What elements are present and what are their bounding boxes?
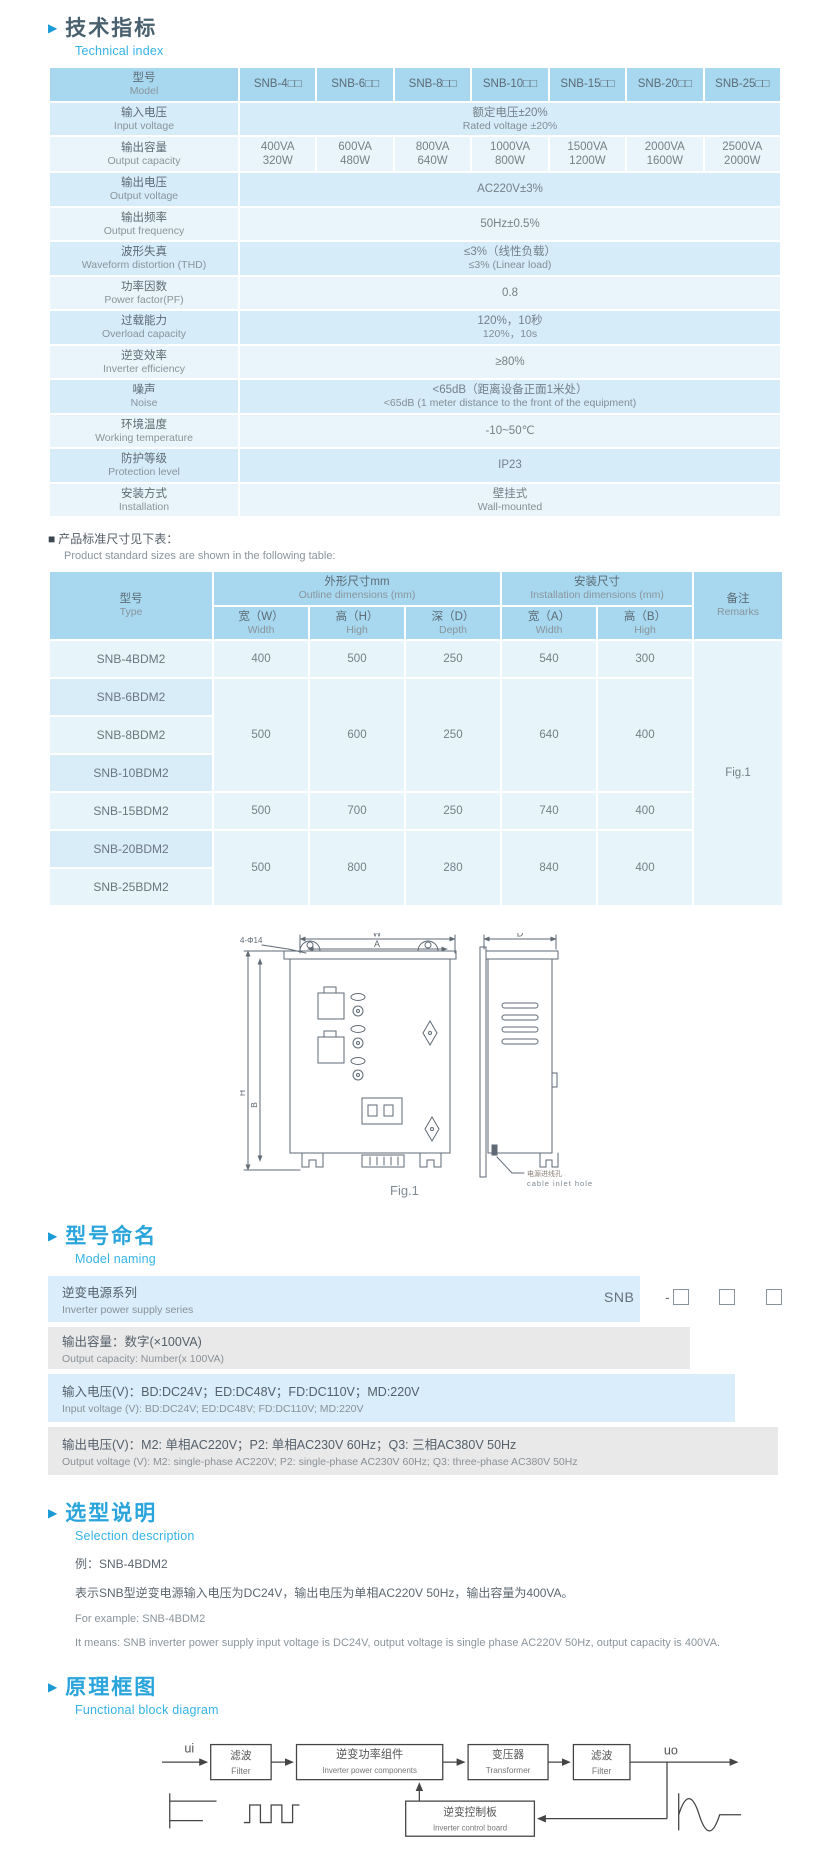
fig-caption: Fig.1 — [390, 1183, 419, 1198]
dim-cell: 300 — [597, 640, 693, 678]
code-box-icon — [766, 1289, 782, 1305]
row-value: 50Hz±0.5% — [239, 207, 781, 242]
section-arrow-icon: ▶ — [48, 1500, 57, 1526]
section-naming-title: ▶ 型号命名 — [48, 1224, 782, 1250]
spec-row: 安装方式Installation 壁挂式Wall-mounted — [49, 483, 781, 518]
selection-desc-zh: 表示SNB型逆变电源输入电压为DC24V，输出电压为单相AC220V 50Hz，… — [75, 1584, 782, 1601]
row-label: 输出频率Output frequency — [49, 207, 239, 242]
spec-row: 波形失真Waveform distortion (THD) ≤3%（线性负载）≤… — [49, 241, 781, 276]
size-note-zh: 产品标准尺寸见下表： — [58, 532, 178, 546]
row-value: AC220V±3% — [239, 172, 781, 207]
section-arrow-icon: ▶ — [48, 1674, 57, 1700]
fig-dim-w: W — [373, 933, 382, 939]
spec-row: 输出容量Output capacity 400VA320W 600VA480W … — [49, 136, 781, 172]
fig-holes-label: 4-Φ14 — [240, 936, 263, 945]
naming-title-text: 型号命名 — [65, 1224, 157, 1250]
row-label: 过载能力Overload capacity — [49, 310, 239, 345]
dim-cell: 250 — [405, 640, 501, 678]
row-value: 0.8 — [239, 276, 781, 311]
size-row: SNB-15BDM2 500 700 250 740 400 — [49, 792, 783, 830]
col-header: SNB-4□□ — [239, 67, 316, 102]
fig-dim-b: B — [249, 1102, 259, 1108]
spec-row: 逆变效率Inverter efficiency ≥80% — [49, 345, 781, 380]
col-header-remarks: 备注Remarks — [693, 571, 783, 640]
size-table: 型号Type 外形尺寸mmOutline dimensions (mm) 安装尺… — [48, 570, 784, 907]
size-row: SNB-4BDM2 400 500 250 540 300 Fig.1 — [49, 640, 783, 678]
spec-row: 噪声Noise <65dB（距离设备正面1米处）<65dB (1 meter d… — [49, 379, 781, 414]
row-value: ≤3%（线性负载）≤3% (Linear load) — [239, 241, 781, 276]
selection-example-en: For example: SNB-4BDM2 — [75, 1613, 782, 1625]
section-arrow-icon: ▶ — [48, 15, 57, 41]
dim-cell: 500 — [213, 792, 309, 830]
row-label: 输出容量Output capacity — [49, 136, 239, 172]
spec-row: 环境温度Working temperature -10~50℃ — [49, 414, 781, 449]
dim-cell: 400 — [597, 678, 693, 792]
fig-dim-a: A — [374, 939, 380, 949]
dim-cell: 400 — [597, 830, 693, 906]
col-header-install: 安装尺寸Installation dimensions (mm) — [501, 571, 693, 606]
functional-block-diagram: ui uo 滤波 Filter 逆变功率组件 Inverter power co… — [160, 1725, 782, 1852]
header-zh: 型号 — [54, 71, 234, 85]
row-value: 1500VA1200W — [549, 136, 626, 172]
diagram-box-filter2: 滤波 Filter — [591, 1749, 613, 1776]
spec-row: 防护等级Protection level IP23 — [49, 448, 781, 483]
svg-text:Filter: Filter — [231, 1766, 251, 1776]
row-label: 输出电压Output voltage — [49, 172, 239, 207]
col-header: SNB-15□□ — [549, 67, 626, 102]
svg-text:变压器: 变压器 — [492, 1748, 524, 1761]
fig-dim-h: H — [240, 1090, 247, 1096]
col-header: SNB-20□□ — [626, 67, 703, 102]
section-selection-title: ▶ 选型说明 — [48, 1501, 782, 1527]
naming-row-input-voltage: 输入电压(V)：BD:DC24V；ED:DC48V；FD:DC110V；MD:2… — [48, 1374, 735, 1422]
row-label: 波形失真Waveform distortion (THD) — [49, 241, 239, 276]
svg-text:逆变功率组件: 逆变功率组件 — [336, 1747, 403, 1761]
row-value: 壁挂式Wall-mounted — [239, 483, 781, 518]
dim-cell: 640 — [501, 678, 597, 792]
row-value: <65dB（距离设备正面1米处）<65dB (1 meter distance … — [239, 379, 781, 414]
model-cell: SNB-25BDM2 — [49, 868, 213, 906]
dim-cell: 540 — [501, 640, 597, 678]
fig-inlet-en: cable inlet hole — [527, 1179, 593, 1188]
diagram-box-inverter-power: 逆变功率组件 Inverter power components — [322, 1747, 417, 1775]
size-note: ■产品标准尺寸见下表： Product standard sizes are s… — [48, 530, 782, 562]
section-naming-subtitle: Model naming — [75, 1252, 782, 1266]
row-value: 2500VA2000W — [704, 136, 781, 172]
datasheet-page: ▶ 技术指标 Technical index 型号 Model SNB-4□□ … — [48, 16, 782, 1852]
col-header-w: 宽（W）Width — [213, 606, 309, 641]
code-prefix: SNB — [604, 1289, 634, 1305]
dim-cell: 280 — [405, 830, 501, 906]
diagram-box-filter1: 滤波 Filter — [230, 1749, 252, 1776]
row-value: 额定电压±20%Rated voltage ±20% — [239, 102, 781, 137]
spec-row: 输出电压Output voltage AC220V±3% — [49, 172, 781, 207]
diagram-output-label: uo — [664, 1743, 678, 1757]
svg-text:滤波: 滤波 — [230, 1749, 252, 1762]
technical-spec-table: 型号 Model SNB-4□□ SNB-6□□ SNB-8□□ SNB-10□… — [48, 66, 782, 518]
page-title: 技术指标 — [65, 16, 157, 42]
model-cell: SNB-8BDM2 — [49, 716, 213, 754]
row-value: 800VA640W — [394, 136, 471, 172]
naming-row-capacity: 输出容量：数字(×100VA) Output capacity: Number(… — [48, 1327, 690, 1369]
model-cell: SNB-15BDM2 — [49, 792, 213, 830]
header-en: Model — [54, 85, 234, 98]
diagram-box-transformer: 变压器 Transformer — [486, 1748, 531, 1775]
row-label: 防护等级Protection level — [49, 448, 239, 483]
svg-text:Inverter control board: Inverter control board — [433, 1823, 507, 1832]
dim-cell: 250 — [405, 792, 501, 830]
row-value: 2000VA1600W — [626, 136, 703, 172]
dim-cell: 740 — [501, 792, 597, 830]
dim-cell: 250 — [405, 678, 501, 792]
col-header-a: 宽（A）Width — [501, 606, 597, 641]
row-value: -10~50℃ — [239, 414, 781, 449]
size-row: SNB-6BDM2 500 600 250 640 400 — [49, 678, 783, 716]
code-capacity-slot: - — [665, 1289, 689, 1305]
size-note-en: Product standard sizes are shown in the … — [64, 550, 782, 562]
row-value: 600VA480W — [316, 136, 393, 172]
spec-row: 过载能力Overload capacity 120%，10秒120%，10s — [49, 310, 781, 345]
blockdiagram-title-text: 原理框图 — [65, 1675, 157, 1701]
section-blockdiagram-subtitle: Functional block diagram — [75, 1703, 782, 1717]
row-value: ≥80% — [239, 345, 781, 380]
dim-cell: 500 — [213, 678, 309, 792]
section-blockdiagram-title: ▶ 原理框图 — [48, 1675, 782, 1701]
col-header-outline: 外形尺寸mmOutline dimensions (mm) — [213, 571, 501, 606]
col-header-d: 深（D）Depth — [405, 606, 501, 641]
row-value: 400VA320W — [239, 136, 316, 172]
col-header: SNB-25□□ — [704, 67, 781, 102]
col-header-b: 高（B）High — [597, 606, 693, 641]
size-header-row: 型号Type 外形尺寸mmOutline dimensions (mm) 安装尺… — [49, 571, 783, 606]
selection-title-text: 选型说明 — [65, 1501, 157, 1527]
row-label: 环境温度Working temperature — [49, 414, 239, 449]
fig-dim-d: D — [517, 933, 524, 939]
col-header-h: 高（H）High — [309, 606, 405, 641]
dim-cell: 840 — [501, 830, 597, 906]
fig-inlet-zh: 电源进线孔 — [527, 1169, 562, 1178]
square-bullet-icon: ■ — [48, 532, 55, 546]
dim-cell: 400 — [597, 792, 693, 830]
row-label: 噪声Noise — [49, 379, 239, 414]
spec-row: 输入电压Input voltage 额定电压±20%Rated voltage … — [49, 102, 781, 137]
col-header-type: 型号Type — [49, 571, 213, 640]
dim-cell: 800 — [309, 830, 405, 906]
model-cell: SNB-10BDM2 — [49, 754, 213, 792]
row-label: 输入电压Input voltage — [49, 102, 239, 137]
row-label: 逆变效率Inverter efficiency — [49, 345, 239, 380]
spec-header-row: 型号 Model SNB-4□□ SNB-6□□ SNB-8□□ SNB-10□… — [49, 67, 781, 102]
section-selection-subtitle: Selection description — [75, 1529, 782, 1543]
col-header-model: 型号 Model — [49, 67, 239, 102]
dim-cell: 500 — [213, 830, 309, 906]
model-naming-diagram: SNB - 逆变电源系列 Inverter power supply serie… — [48, 1276, 782, 1475]
code-box-icon — [719, 1289, 735, 1305]
dim-cell: 500 — [309, 640, 405, 678]
section-technical-subtitle: Technical index — [75, 44, 782, 58]
col-header: SNB-10□□ — [471, 67, 548, 102]
section-arrow-icon: ▶ — [48, 1223, 57, 1249]
row-label: 功率因数Power factor(PF) — [49, 276, 239, 311]
selection-text: 例：SNB-4BDM2 表示SNB型逆变电源输入电压为DC24V，输出电压为单相… — [75, 1555, 782, 1649]
naming-row-series: 逆变电源系列 Inverter power supply series — [48, 1276, 640, 1322]
row-value: 120%，10秒120%，10s — [239, 310, 781, 345]
size-row: SNB-20BDM2 500 800 280 840 400 — [49, 830, 783, 868]
model-code: SNB - — [604, 1289, 782, 1305]
spec-row: 功率因数Power factor(PF) 0.8 — [49, 276, 781, 311]
svg-text:滤波: 滤波 — [591, 1749, 613, 1762]
naming-row-output-voltage: 输出电压(V)：M2: 单相AC220V；P2: 单相AC230V 60Hz；Q… — [48, 1427, 778, 1475]
dim-cell: 600 — [309, 678, 405, 792]
model-cell: SNB-6BDM2 — [49, 678, 213, 716]
row-value: IP23 — [239, 448, 781, 483]
remarks-cell: Fig.1 — [693, 640, 783, 906]
col-header: SNB-8□□ — [394, 67, 471, 102]
svg-text:Transformer: Transformer — [486, 1766, 531, 1775]
selection-example-zh: 例：SNB-4BDM2 — [75, 1555, 782, 1572]
svg-text:Inverter power components: Inverter power components — [322, 1766, 417, 1775]
selection-desc-en: It means: SNB inverter power supply inpu… — [75, 1637, 782, 1649]
model-cell: SNB-4BDM2 — [49, 640, 213, 678]
dim-cell: 700 — [309, 792, 405, 830]
spec-row: 输出频率Output frequency 50Hz±0.5% — [49, 207, 781, 242]
svg-text:Filter: Filter — [592, 1766, 612, 1776]
row-value: 1000VA800W — [471, 136, 548, 172]
code-box-icon — [673, 1289, 689, 1305]
row-label: 安装方式Installation — [49, 483, 239, 518]
col-header: SNB-6□□ — [316, 67, 393, 102]
dimension-drawing: W A D 4-Φ14 H B 电源进线孔 cable inlet hole F… — [240, 933, 782, 1210]
section-technical-title: ▶ 技术指标 — [48, 16, 782, 42]
dim-cell: 400 — [213, 640, 309, 678]
diagram-box-control-board: 逆变控制板 Inverter control board — [433, 1806, 507, 1833]
diagram-input-label: ui — [184, 1741, 194, 1755]
model-cell: SNB-20BDM2 — [49, 830, 213, 868]
